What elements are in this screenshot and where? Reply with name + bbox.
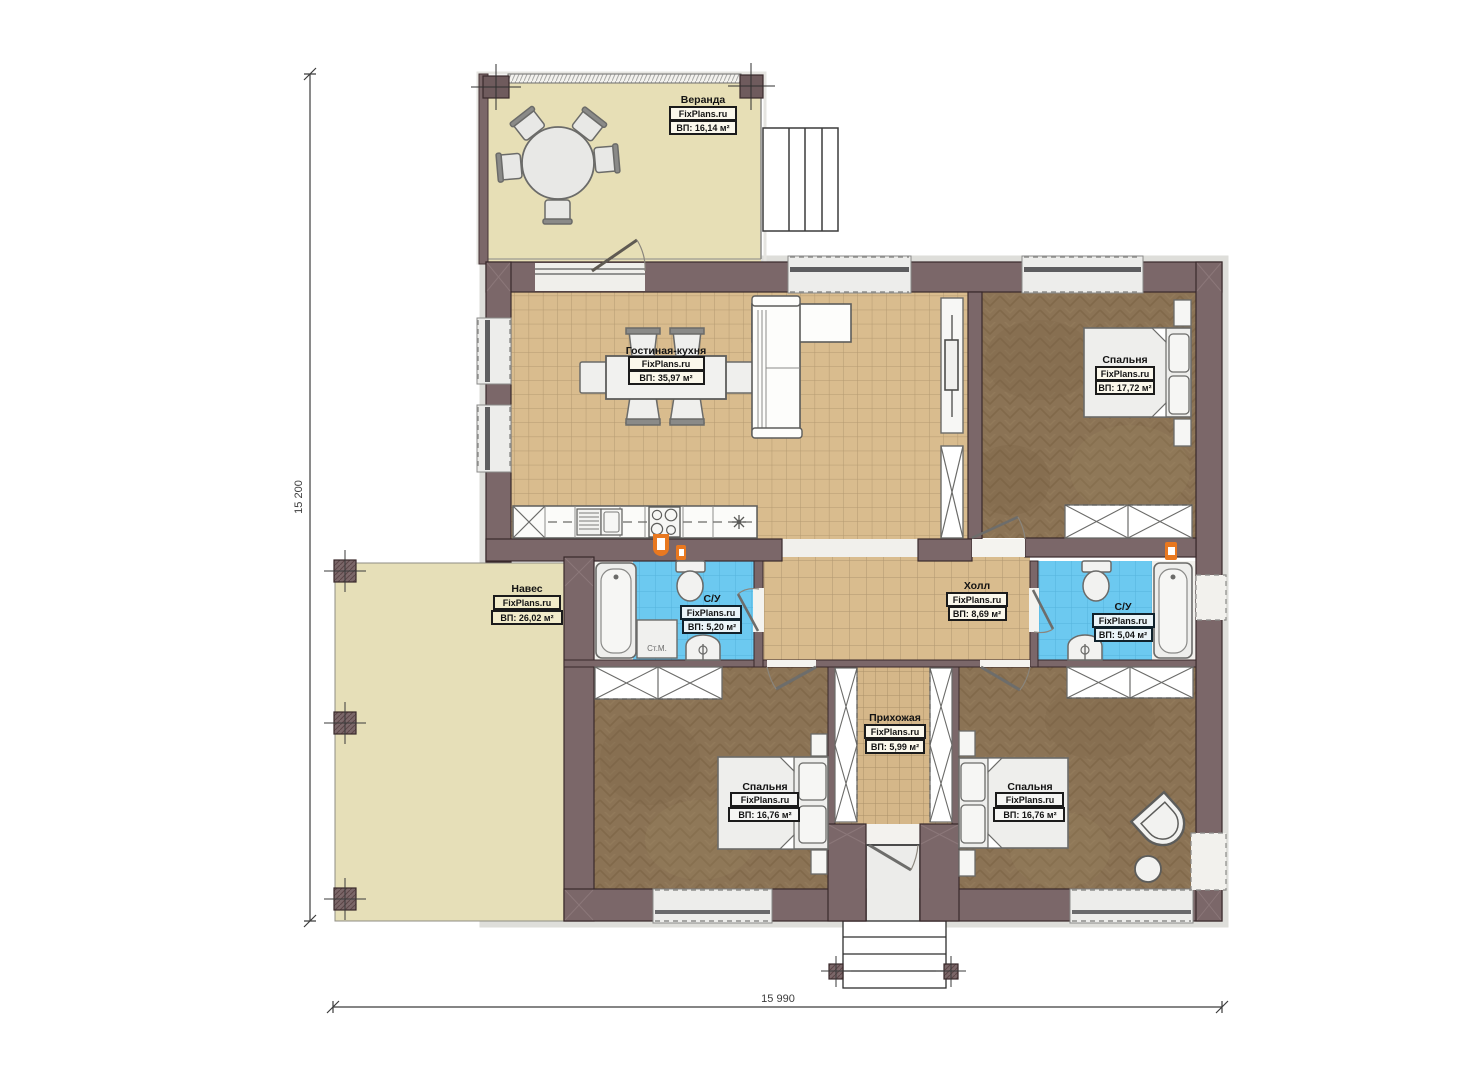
svg-text:15 990: 15 990 — [761, 993, 795, 1005]
svg-text:FixPlans.ru: FixPlans.ru — [741, 795, 790, 805]
svg-text:С/У: С/У — [703, 593, 721, 605]
svg-text:ВП: 16,76 м²: ВП: 16,76 м² — [1003, 810, 1056, 820]
svg-text:Ст.М.: Ст.М. — [647, 644, 667, 653]
svg-text:15 200: 15 200 — [293, 480, 305, 514]
svg-text:FixPlans.ru: FixPlans.ru — [871, 727, 920, 737]
svg-text:FixPlans.ru: FixPlans.ru — [953, 595, 1002, 605]
svg-text:Прихожая: Прихожая — [869, 712, 921, 724]
svg-text:Спальня: Спальня — [742, 781, 787, 793]
svg-text:ВП: 5,04 м²: ВП: 5,04 м² — [1099, 630, 1147, 640]
svg-text:Веранда: Веранда — [681, 94, 726, 106]
svg-text:ВП: 8,69 м²: ВП: 8,69 м² — [953, 609, 1001, 619]
svg-text:FixPlans.ru: FixPlans.ru — [687, 608, 736, 618]
svg-text:ВП: 5,99 м²: ВП: 5,99 м² — [871, 742, 919, 752]
svg-text:С/У: С/У — [1114, 601, 1132, 613]
svg-text:FixPlans.ru: FixPlans.ru — [503, 598, 552, 608]
svg-text:Спальня: Спальня — [1102, 354, 1147, 366]
svg-text:FixPlans.ru: FixPlans.ru — [642, 359, 691, 369]
svg-text:FixPlans.ru: FixPlans.ru — [1099, 616, 1148, 626]
svg-text:FixPlans.ru: FixPlans.ru — [679, 109, 728, 119]
svg-text:ВП: 16,14 м²: ВП: 16,14 м² — [676, 123, 729, 133]
svg-text:Навес: Навес — [511, 583, 542, 595]
svg-text:ВП: 35,97 м²: ВП: 35,97 м² — [639, 373, 692, 383]
svg-text:ВП: 16,76 м²: ВП: 16,76 м² — [738, 810, 791, 820]
svg-text:Спальня: Спальня — [1007, 781, 1052, 793]
svg-text:Гостиная-кухня: Гостиная-кухня — [626, 345, 706, 357]
svg-text:FixPlans.ru: FixPlans.ru — [1101, 369, 1150, 379]
svg-text:FixPlans.ru: FixPlans.ru — [1006, 795, 1055, 805]
svg-text:ВП: 5,20 м²: ВП: 5,20 м² — [688, 622, 736, 632]
svg-text:ВП: 17,72 м²: ВП: 17,72 м² — [1098, 383, 1151, 393]
svg-text:Холл: Холл — [964, 580, 990, 592]
svg-text:ВП: 26,02 м²: ВП: 26,02 м² — [500, 613, 553, 623]
